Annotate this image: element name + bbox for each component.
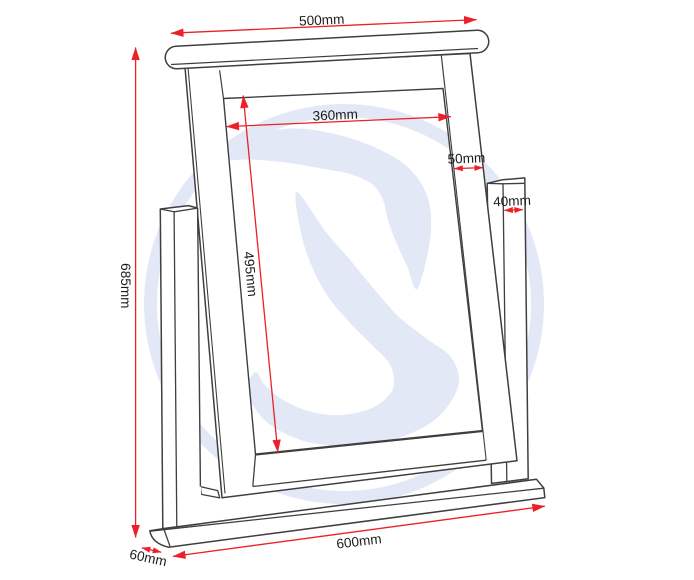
svg-text:600mm: 600mm [336, 531, 383, 551]
svg-text:500mm: 500mm [299, 12, 345, 29]
svg-text:60mm: 60mm [128, 546, 168, 569]
svg-text:50mm: 50mm [447, 150, 485, 167]
svg-text:360mm: 360mm [312, 107, 358, 124]
svg-text:685mm: 685mm [118, 263, 133, 308]
svg-text:40mm: 40mm [493, 193, 531, 210]
svg-text:495mm: 495mm [241, 251, 260, 298]
